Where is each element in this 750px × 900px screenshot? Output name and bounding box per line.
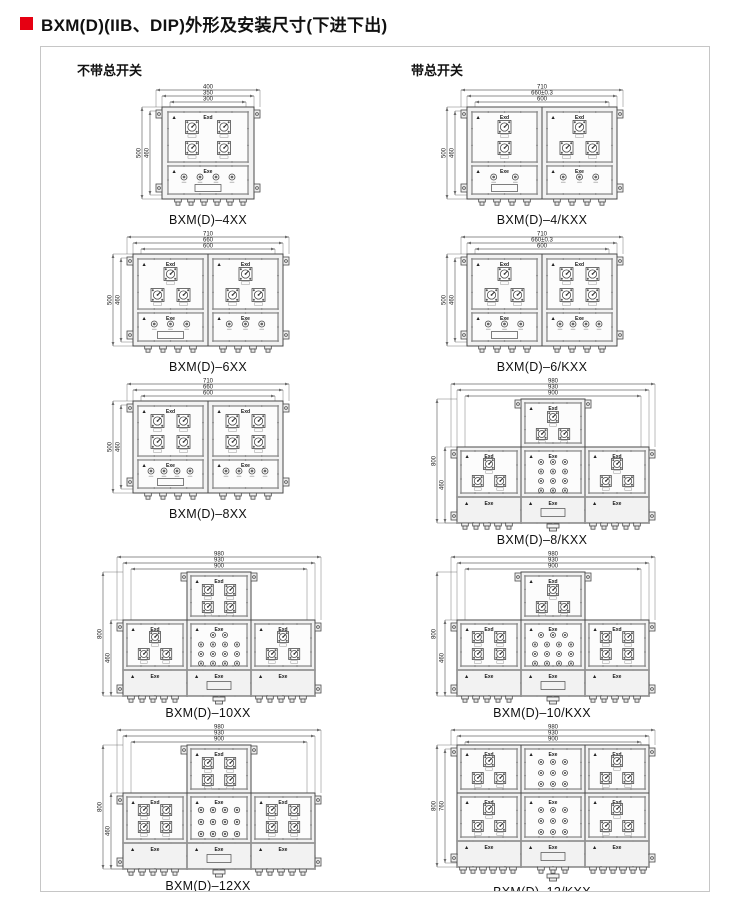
svg-text:760: 760 bbox=[439, 800, 445, 811]
svg-text:Exe: Exe bbox=[549, 845, 558, 851]
svg-text:Exe: Exe bbox=[549, 454, 558, 460]
drawing-8kxx: 980930900800460ExdExdExdExeExeExeExe bbox=[427, 377, 657, 533]
drawing-4xx: 400350300500460ExdExe bbox=[103, 83, 313, 213]
figure-caption-4kxx: BXM(D)–4/KXX bbox=[497, 213, 587, 228]
drawing-12kxx: 980930900800760ExdExdExeExdExdExeExeExeE… bbox=[427, 723, 657, 885]
svg-text:600: 600 bbox=[537, 97, 548, 103]
svg-text:Exd: Exd bbox=[278, 800, 287, 806]
figure-caption-10kxx: BXM(D)–10/KXX bbox=[493, 706, 591, 721]
svg-text:Exd: Exd bbox=[500, 262, 509, 268]
svg-text:800: 800 bbox=[431, 628, 437, 639]
svg-text:460: 460 bbox=[449, 147, 455, 158]
figure-10xx: 980930900800460ExdExdExdExeExeExeExeBXM(… bbox=[93, 550, 323, 721]
catalog-page: BXM(D)(IIB、DIP)外形及安装尺寸(下进下出) 不带总开关 带总开关 … bbox=[0, 0, 750, 900]
svg-text:900: 900 bbox=[214, 737, 225, 743]
svg-text:600: 600 bbox=[537, 244, 548, 250]
svg-text:Exe: Exe bbox=[613, 674, 622, 680]
svg-text:Exe: Exe bbox=[241, 463, 250, 469]
svg-text:Exe: Exe bbox=[279, 847, 288, 853]
figure-6kxx: 710660±0.3600500460ExdExeExdExeBXM(D)–6/… bbox=[437, 230, 647, 375]
svg-text:Exd: Exd bbox=[484, 627, 493, 633]
svg-text:900: 900 bbox=[214, 564, 225, 570]
svg-text:Exd: Exd bbox=[575, 115, 584, 121]
svg-text:Exe: Exe bbox=[151, 674, 160, 680]
svg-text:Exe: Exe bbox=[485, 501, 494, 507]
svg-text:500: 500 bbox=[107, 294, 113, 305]
svg-text:Exe: Exe bbox=[215, 627, 224, 633]
drawing-10kxx: 980930900800460ExdExdExdExeExeExeExe bbox=[427, 550, 657, 706]
figure-6xx: 710660600500460ExdExeExdExeBXM(D)–6XX bbox=[103, 230, 313, 375]
svg-text:Exe: Exe bbox=[549, 627, 558, 633]
drawing-12xx: 980930900800460ExdExdExdExeExeExeExe bbox=[93, 723, 323, 879]
svg-text:460: 460 bbox=[115, 294, 121, 305]
drawing-6kxx: 710660±0.3600500460ExdExeExdExe bbox=[437, 230, 647, 360]
svg-text:500: 500 bbox=[441, 294, 447, 305]
svg-text:Exe: Exe bbox=[215, 800, 224, 806]
svg-text:460: 460 bbox=[105, 652, 111, 663]
figure-caption-6xx: BXM(D)–6XX bbox=[169, 360, 247, 375]
svg-text:Exe: Exe bbox=[613, 845, 622, 851]
svg-text:Exe: Exe bbox=[549, 800, 558, 806]
svg-text:Exd: Exd bbox=[241, 409, 250, 415]
figure-caption-12kxx: BXM(D)–12/KXX bbox=[493, 885, 591, 892]
figure-caption-4xx: BXM(D)–4XX bbox=[169, 213, 247, 228]
figure-4xx: 400350300500460ExdExeBXM(D)–4XX bbox=[103, 83, 313, 228]
svg-text:Exe: Exe bbox=[204, 169, 213, 175]
svg-text:Exd: Exd bbox=[500, 115, 509, 121]
svg-text:Exd: Exd bbox=[241, 262, 250, 268]
drawing-10xx: 980930900800460ExdExdExdExeExeExeExe bbox=[93, 550, 323, 706]
content-panel: 不带总开关 带总开关 400350300500460ExdExeBXM(D)–4… bbox=[40, 46, 710, 892]
svg-text:900: 900 bbox=[548, 737, 559, 743]
svg-text:460: 460 bbox=[105, 825, 111, 836]
svg-text:Exe: Exe bbox=[500, 169, 509, 175]
column-header-left: 不带总开关 bbox=[41, 47, 375, 81]
drawing-6xx: 710660600500460ExdExeExdExe bbox=[103, 230, 313, 360]
svg-text:Exe: Exe bbox=[279, 674, 288, 680]
svg-text:600: 600 bbox=[203, 391, 214, 397]
svg-text:600: 600 bbox=[203, 244, 214, 250]
svg-text:Exe: Exe bbox=[549, 752, 558, 758]
svg-text:460: 460 bbox=[439, 479, 445, 490]
svg-text:Exd: Exd bbox=[548, 406, 557, 412]
svg-text:Exd: Exd bbox=[214, 579, 223, 585]
svg-text:460: 460 bbox=[115, 441, 121, 452]
figure-caption-10xx: BXM(D)–10XX bbox=[165, 706, 250, 721]
svg-text:Exd: Exd bbox=[166, 409, 175, 415]
svg-text:Exe: Exe bbox=[166, 463, 175, 469]
figure-caption-6kxx: BXM(D)–6/KXX bbox=[497, 360, 587, 375]
page-header: BXM(D)(IIB、DIP)外形及安装尺寸(下进下出) bbox=[0, 0, 750, 36]
svg-text:Exe: Exe bbox=[215, 674, 224, 680]
svg-text:Exe: Exe bbox=[485, 674, 494, 680]
svg-text:Exd: Exd bbox=[612, 627, 621, 633]
svg-text:800: 800 bbox=[97, 628, 103, 639]
svg-text:900: 900 bbox=[548, 391, 559, 397]
svg-text:Exd: Exd bbox=[214, 752, 223, 758]
figure-8kxx: 980930900800460ExdExdExdExeExeExeExeBXM(… bbox=[427, 377, 657, 548]
figure-caption-8xx: BXM(D)–8XX bbox=[169, 507, 247, 522]
figure-4kxx: 710660±0.3600500460ExdExeExdExeBXM(D)–4/… bbox=[437, 83, 647, 228]
figure-10kxx: 980930900800460ExdExdExdExeExeExeExeBXM(… bbox=[427, 550, 657, 721]
svg-text:900: 900 bbox=[548, 564, 559, 570]
svg-text:Exe: Exe bbox=[613, 501, 622, 507]
svg-text:Exe: Exe bbox=[575, 316, 584, 322]
svg-text:800: 800 bbox=[97, 801, 103, 812]
svg-text:Exd: Exd bbox=[575, 262, 584, 268]
svg-text:800: 800 bbox=[431, 800, 437, 811]
svg-text:Exd: Exd bbox=[150, 800, 159, 806]
figure-8xx: 710660600500460ExdExeExdExeBXM(D)–8XX bbox=[103, 377, 313, 548]
svg-text:Exd: Exd bbox=[203, 115, 212, 121]
svg-text:Exd: Exd bbox=[548, 579, 557, 585]
svg-text:460: 460 bbox=[439, 652, 445, 663]
figure-12xx: 980930900800460ExdExdExdExeExeExeExeBXM(… bbox=[93, 723, 323, 892]
svg-text:800: 800 bbox=[431, 455, 437, 466]
page-title: BXM(D)(IIB、DIP)外形及安装尺寸(下进下出) bbox=[41, 11, 387, 36]
figure-caption-12xx: BXM(D)–12XX bbox=[165, 879, 250, 892]
figures-grid: 不带总开关 带总开关 400350300500460ExdExeBXM(D)–4… bbox=[41, 47, 709, 892]
figure-caption-8kxx: BXM(D)–8/KXX bbox=[497, 533, 587, 548]
column-header-right: 带总开关 bbox=[375, 47, 709, 81]
svg-text:Exe: Exe bbox=[215, 847, 224, 853]
svg-text:Exd: Exd bbox=[166, 262, 175, 268]
svg-text:500: 500 bbox=[441, 147, 447, 158]
figure-12kxx: 980930900800760ExdExdExeExdExdExeExeExeE… bbox=[427, 723, 657, 892]
svg-text:Exe: Exe bbox=[485, 845, 494, 851]
svg-text:500: 500 bbox=[136, 147, 142, 158]
svg-text:500: 500 bbox=[107, 441, 113, 452]
svg-text:300: 300 bbox=[203, 97, 214, 103]
svg-text:Exe: Exe bbox=[549, 674, 558, 680]
svg-text:460: 460 bbox=[449, 294, 455, 305]
svg-text:Exe: Exe bbox=[151, 847, 160, 853]
drawing-4kxx: 710660±0.3600500460ExdExeExdExe bbox=[437, 83, 647, 213]
red-square-bullet bbox=[20, 17, 33, 30]
drawing-8xx: 710660600500460ExdExeExdExe bbox=[103, 377, 313, 507]
svg-text:Exe: Exe bbox=[549, 501, 558, 507]
svg-text:460: 460 bbox=[144, 147, 150, 158]
